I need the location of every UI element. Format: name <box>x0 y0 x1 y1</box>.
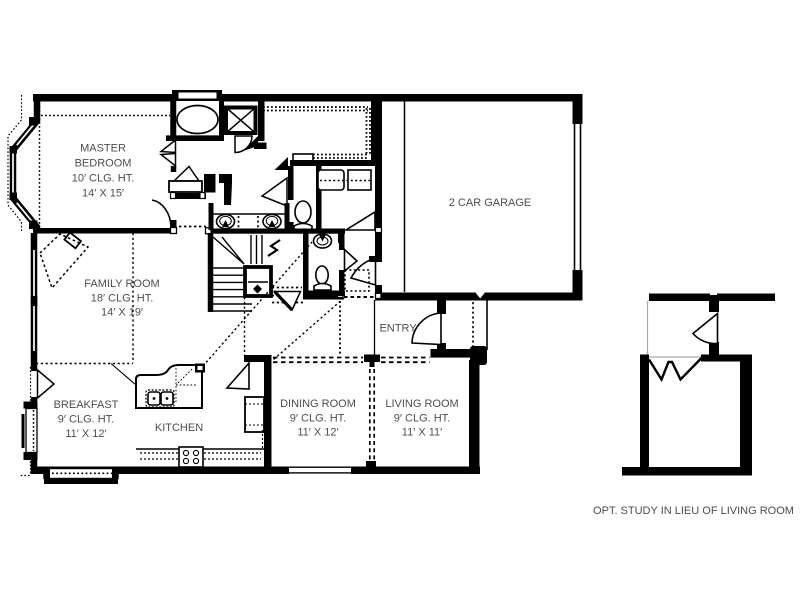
svg-text:11′ X 12′: 11′ X 12′ <box>65 428 106 440</box>
svg-text:9′ CLG. HT.: 9′ CLG. HT. <box>58 414 114 426</box>
svg-text:DINING ROOM: DINING ROOM <box>280 398 356 410</box>
svg-text:OPT. STUDY IN LIEU OF LIVING R: OPT. STUDY IN LIEU OF LIVING ROOM <box>593 505 794 517</box>
svg-text:FAMILY ROOM: FAMILY ROOM <box>84 278 159 290</box>
svg-text:11′ X 12′: 11′ X 12′ <box>297 427 338 439</box>
svg-text:MASTER: MASTER <box>80 143 126 155</box>
svg-text:11′ X 11′: 11′ X 11′ <box>402 427 442 439</box>
svg-text:BEDROOM: BEDROOM <box>75 158 132 170</box>
svg-text:18′ CLG. HT.: 18′ CLG. HT. <box>91 293 154 305</box>
svg-text:10′ CLG. HT.: 10′ CLG. HT. <box>72 173 135 185</box>
svg-text:14′ X 15′: 14′ X 15′ <box>82 188 124 200</box>
svg-text:14′ X 19′: 14′ X 19′ <box>101 307 143 319</box>
svg-text:LIVING ROOM: LIVING ROOM <box>385 398 458 410</box>
svg-text:BREAKFAST: BREAKFAST <box>54 399 119 411</box>
svg-text:9′ CLG. HT.: 9′ CLG. HT. <box>394 413 450 425</box>
svg-text:ENTRY: ENTRY <box>379 323 417 335</box>
svg-text:2 CAR GARAGE: 2 CAR GARAGE <box>449 197 532 209</box>
svg-text:9′ CLG. HT.: 9′ CLG. HT. <box>290 413 346 425</box>
svg-text:KITCHEN: KITCHEN <box>155 422 203 434</box>
